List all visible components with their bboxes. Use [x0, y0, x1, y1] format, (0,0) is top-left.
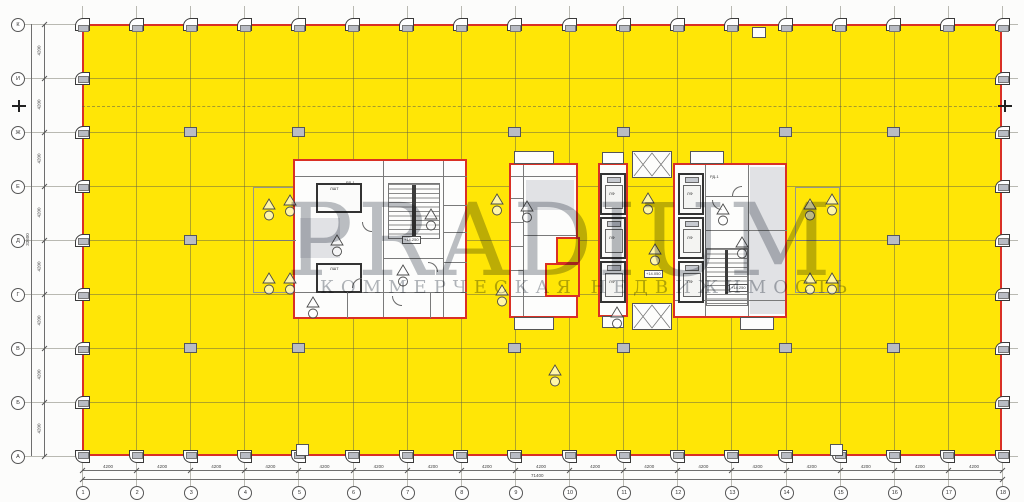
column-concrete-fill — [510, 25, 521, 32]
annotation-symbol — [548, 364, 562, 388]
perimeter-column — [75, 450, 90, 463]
perimeter-column — [399, 450, 414, 463]
column-concrete-fill — [673, 25, 684, 32]
perimeter-column — [237, 450, 252, 463]
lift-counterweight — [607, 265, 621, 271]
perimeter-column — [399, 18, 414, 31]
lift-label: ЛФ — [609, 235, 615, 240]
core-a-partition — [383, 161, 384, 317]
annotation-symbol — [283, 272, 297, 296]
open-partition-line — [253, 240, 296, 241]
column-concrete-fill — [402, 25, 413, 32]
floorplan-drawing: PRADIUM КОММЕРЧЕСКАЯ НЕДВИЖИМОСТЬ 420042… — [0, 0, 1024, 502]
column-concrete-fill — [456, 452, 467, 459]
interior-column — [184, 235, 197, 245]
axis-bubble-left: К — [11, 18, 25, 32]
axis-bubble-bottom: 10 — [563, 486, 577, 500]
vestibule — [602, 152, 624, 164]
column-concrete-fill — [78, 238, 89, 245]
core-a-partition — [383, 258, 444, 259]
column-concrete-fill — [619, 452, 630, 459]
perimeter-column — [75, 342, 90, 355]
column-concrete-fill — [835, 25, 846, 32]
perimeter-column — [995, 288, 1010, 301]
perimeter-column — [778, 18, 793, 31]
core-b-partition — [511, 198, 523, 199]
dim-text-bay: 4200 — [644, 464, 654, 469]
axis-stub-left — [24, 78, 82, 79]
interior-column — [508, 343, 521, 353]
axis-bubble-bottom: 5 — [292, 486, 306, 500]
interior-column — [887, 343, 900, 353]
annotation-symbol — [825, 272, 839, 296]
corridor-vestibule — [632, 303, 672, 330]
column-concrete-fill — [78, 452, 89, 459]
core-a-partition — [347, 292, 348, 318]
perimeter-column — [562, 450, 577, 463]
axis-bubble-bottom: 1 — [76, 486, 90, 500]
perimeter-column — [940, 450, 955, 463]
dim-text-bay: 4200 — [211, 464, 221, 469]
axis-bubble-bottom: 4 — [238, 486, 252, 500]
perimeter-column — [670, 18, 685, 31]
stair-stringer — [725, 250, 728, 294]
core-b-notch — [545, 263, 580, 297]
perimeter-column — [75, 18, 90, 31]
door-tag: РД-1 — [710, 174, 719, 179]
annotation-symbol — [610, 306, 624, 330]
perimeter-column — [616, 450, 631, 463]
axis-bubble-bottom: 7 — [401, 486, 415, 500]
level-mark: +14.250 — [729, 284, 748, 292]
dim-text-bay: 4200 — [428, 464, 438, 469]
axis-bubble-left: Д — [11, 234, 25, 248]
section-mark-left — [18, 100, 20, 112]
vestibule — [514, 151, 554, 164]
perimeter-column — [507, 450, 522, 463]
perimeter-column — [183, 450, 198, 463]
annotation-symbol — [396, 264, 410, 288]
core-b-partition — [511, 176, 576, 177]
lift-shaft — [316, 183, 362, 213]
axis-bubble-left: Г — [11, 288, 25, 302]
column-concrete-fill — [998, 400, 1009, 407]
perimeter-column — [129, 450, 144, 463]
dim-text-bay: 4200 — [374, 464, 384, 469]
perimeter-column — [291, 18, 306, 31]
axis-stub-left — [24, 240, 82, 241]
lift-counterweight — [685, 177, 699, 183]
interior-column — [617, 343, 630, 353]
wall-shaft — [830, 444, 843, 456]
dim-text-bay: 4200 — [103, 464, 113, 469]
axis-bubble-left: Е — [11, 180, 25, 194]
annotation-symbol — [283, 194, 297, 218]
level-mark: +14.250 — [402, 236, 421, 244]
perimeter-column — [778, 450, 793, 463]
column-concrete-fill — [132, 452, 143, 459]
lift-label: ЛФ — [609, 191, 615, 196]
core-d-partition — [705, 196, 748, 197]
axis-stub-left — [24, 294, 82, 295]
dim-text-total-left: 33600 — [25, 233, 30, 246]
vestibule — [740, 317, 774, 330]
dim-text-bay: 4200 — [157, 464, 167, 469]
interior-column — [508, 127, 521, 137]
lift-shaft-label: ЛШТ — [330, 186, 339, 191]
column-concrete-fill — [456, 25, 467, 32]
perimeter-column — [995, 126, 1010, 139]
column-concrete-fill — [348, 452, 359, 459]
dim-text-bay: 4200 — [698, 464, 708, 469]
perimeter-column — [886, 18, 901, 31]
perimeter-column — [75, 180, 90, 193]
perimeter-column — [75, 72, 90, 85]
annotation-symbol — [262, 198, 276, 222]
lift-cab — [605, 273, 623, 297]
interior-column — [779, 343, 792, 353]
dim-text-bay: 4200 — [752, 464, 762, 469]
perimeter-column — [345, 18, 360, 31]
dim-text-bay-left: 4200 — [37, 369, 42, 379]
column-concrete-fill — [294, 25, 305, 32]
column-concrete-fill — [943, 25, 954, 32]
axis-bubble-bottom: 6 — [347, 486, 361, 500]
column-concrete-fill — [78, 25, 89, 32]
perimeter-column — [995, 180, 1010, 193]
level-mark: +14.050 — [644, 270, 663, 278]
annotation-symbol — [648, 243, 662, 267]
perimeter-column — [183, 18, 198, 31]
perimeter-column — [507, 18, 522, 31]
perimeter-column — [75, 234, 90, 247]
column-concrete-fill — [186, 452, 197, 459]
axis-bubble-bottom: 2 — [130, 486, 144, 500]
dim-text-bay-left: 4200 — [37, 423, 42, 433]
perimeter-column — [724, 18, 739, 31]
column-concrete-fill — [727, 452, 738, 459]
dim-text-bay: 4200 — [590, 464, 600, 469]
axis-bubble-left: Ж — [11, 126, 25, 140]
perimeter-column — [75, 288, 90, 301]
axis-bubble-bottom: 11 — [617, 486, 631, 500]
perimeter-column — [345, 450, 360, 463]
dim-text-total-bottom: 71400 — [531, 473, 544, 478]
column-concrete-fill — [78, 292, 89, 299]
column-concrete-fill — [673, 452, 684, 459]
door-tag: РД-1 — [346, 180, 355, 185]
interior-column — [184, 127, 197, 137]
interior-column — [292, 127, 305, 137]
interior-column — [887, 127, 900, 137]
interior-column — [887, 235, 900, 245]
axis-bubble-bottom: 15 — [834, 486, 848, 500]
column-concrete-fill — [889, 25, 900, 32]
dim-text-bay-left: 4200 — [37, 99, 42, 109]
perimeter-column — [453, 450, 468, 463]
grid-line-h — [82, 132, 1002, 133]
dim-text-bay: 4200 — [265, 464, 275, 469]
perimeter-column — [995, 450, 1010, 463]
perimeter-column — [75, 126, 90, 139]
annotation-symbol — [495, 284, 509, 308]
core-b-partition — [511, 246, 523, 247]
perimeter-column — [616, 18, 631, 31]
lift-cab — [683, 229, 701, 253]
column-concrete-fill — [348, 25, 359, 32]
section-mark-right — [1004, 100, 1006, 112]
dim-text-bay-left: 4200 — [37, 45, 42, 55]
perimeter-column — [724, 450, 739, 463]
axis-stub-left — [24, 456, 82, 457]
dim-text-bay-left: 4200 — [37, 315, 42, 325]
lift-cab — [605, 229, 623, 253]
perimeter-column — [995, 342, 1010, 355]
dim-text-bay: 4200 — [320, 464, 330, 469]
dim-text-bay-left: 4200 — [37, 261, 42, 271]
column-concrete-fill — [132, 25, 143, 32]
column-concrete-fill — [781, 452, 792, 459]
core-b-notch — [556, 237, 580, 264]
perimeter-column — [886, 450, 901, 463]
axis-bubble-bottom: 17 — [942, 486, 956, 500]
core-a-partition — [443, 232, 467, 233]
axis-bubble-bottom: 16 — [888, 486, 902, 500]
core-b-partition — [523, 165, 524, 316]
column-concrete-fill — [998, 184, 1009, 191]
grid-line-h — [82, 348, 1002, 349]
column-concrete-fill — [565, 452, 576, 459]
column-concrete-fill — [78, 130, 89, 137]
column-concrete-fill — [943, 452, 954, 459]
dim-text-bay-left: 4200 — [37, 207, 42, 217]
core-a-partition — [443, 262, 467, 263]
lift-counterweight — [607, 221, 621, 227]
wall-shaft — [296, 444, 309, 456]
core-a-partition — [295, 176, 467, 177]
open-partition-line — [795, 240, 840, 241]
annotation-symbol — [641, 192, 655, 216]
vestibule — [690, 151, 724, 164]
column-concrete-fill — [998, 238, 1009, 245]
dim-text-bay: 4200 — [861, 464, 871, 469]
lift-counterweight — [685, 265, 699, 271]
interior-column — [184, 343, 197, 353]
column-concrete-fill — [781, 25, 792, 32]
axis-bubble-bottom: 9 — [509, 486, 523, 500]
core-a-partition — [430, 292, 431, 318]
annotation-symbol — [490, 193, 504, 217]
annotation-symbol — [262, 272, 276, 296]
section-line — [82, 106, 1002, 107]
axis-bubble-left: Б — [11, 396, 25, 410]
column-concrete-fill — [727, 25, 738, 32]
column-concrete-fill — [510, 452, 521, 459]
axis-bubble-left: И — [11, 72, 25, 86]
dim-text-bay: 4200 — [536, 464, 546, 469]
perimeter-column — [129, 18, 144, 31]
column-concrete-fill — [240, 25, 251, 32]
perimeter-column — [995, 396, 1010, 409]
annotation-symbol — [306, 296, 320, 320]
column-concrete-fill — [998, 292, 1009, 299]
core-d-partition — [705, 230, 787, 231]
wall-shaft — [752, 27, 766, 38]
grid-line-h — [82, 402, 1002, 403]
lift-label: ЛФ — [687, 235, 693, 240]
dim-line-bottom — [82, 470, 1002, 471]
core-b-partition — [523, 235, 576, 236]
column-concrete-fill — [998, 76, 1009, 83]
column-concrete-fill — [565, 25, 576, 32]
column-concrete-fill — [998, 25, 1009, 32]
perimeter-column — [453, 18, 468, 31]
column-concrete-fill — [998, 346, 1009, 353]
lift-counterweight — [607, 177, 621, 183]
annotation-symbol — [735, 236, 749, 260]
axis-stub-left — [24, 24, 82, 25]
interior-column — [617, 127, 630, 137]
vestibule — [514, 317, 554, 330]
dim-text-bay: 4200 — [969, 464, 979, 469]
annotation-symbol — [825, 193, 839, 217]
column-concrete-fill — [998, 452, 1009, 459]
perimeter-column — [995, 18, 1010, 31]
annotation-symbol — [803, 272, 817, 296]
perimeter-column — [562, 18, 577, 31]
perimeter-column — [237, 18, 252, 31]
interior-column — [292, 343, 305, 353]
perimeter-column — [670, 450, 685, 463]
double-door-symbol — [633, 304, 671, 329]
axis-bubble-bottom: 3 — [184, 486, 198, 500]
dim-text-bay: 4200 — [482, 464, 492, 469]
annotation-symbol — [330, 234, 344, 258]
axis-stub-left — [24, 348, 82, 349]
perimeter-column — [75, 396, 90, 409]
column-concrete-fill — [889, 452, 900, 459]
axis-bubble-bottom: 14 — [780, 486, 794, 500]
lift-label: ЛФ — [687, 279, 693, 284]
dim-text-bay: 4200 — [915, 464, 925, 469]
perimeter-column — [940, 18, 955, 31]
stair-stringer — [412, 185, 416, 237]
column-concrete-fill — [78, 76, 89, 83]
column-concrete-fill — [78, 400, 89, 407]
axis-stub-left — [24, 132, 82, 133]
core-a-partition — [443, 161, 444, 317]
core-d-shading — [750, 167, 785, 314]
column-concrete-fill — [78, 346, 89, 353]
annotation-symbol — [520, 200, 534, 224]
column-concrete-fill — [619, 25, 630, 32]
dim-line-left-total — [31, 24, 32, 456]
lift-cab — [683, 185, 701, 209]
lift-shaft — [316, 263, 362, 293]
lift-cab — [683, 273, 701, 297]
axis-bubble-bottom: 12 — [671, 486, 685, 500]
grid-line-h — [82, 78, 1002, 79]
double-door-symbol — [633, 152, 671, 177]
axis-bubble-bottom: 13 — [725, 486, 739, 500]
lift-counterweight — [685, 221, 699, 227]
dim-line-bottom-total — [82, 479, 1002, 480]
axis-bubble-bottom: 18 — [996, 486, 1010, 500]
axis-bubble-left: А — [11, 450, 25, 464]
annotation-symbol — [803, 198, 817, 222]
perimeter-column — [995, 72, 1010, 85]
interior-column — [779, 127, 792, 137]
lift-shaft-label: ЛШТ — [330, 266, 339, 271]
column-concrete-fill — [402, 452, 413, 459]
annotation-symbol — [716, 203, 730, 227]
column-concrete-fill — [998, 130, 1009, 137]
annotation-symbol — [424, 208, 438, 232]
column-concrete-fill — [78, 184, 89, 191]
perimeter-column — [995, 234, 1010, 247]
lift-cab — [605, 185, 623, 209]
axis-bubble-bottom: 8 — [455, 486, 469, 500]
corridor-vestibule — [632, 151, 672, 178]
dim-text-bay-left: 4200 — [37, 153, 42, 163]
axis-stub-left — [24, 402, 82, 403]
dim-text-bay: 4200 — [807, 464, 817, 469]
core-a-partition — [443, 205, 467, 206]
axis-bubble-left: В — [11, 342, 25, 356]
column-concrete-fill — [186, 25, 197, 32]
perimeter-column — [832, 18, 847, 31]
column-concrete-fill — [240, 452, 251, 459]
core-b-partition — [511, 270, 523, 271]
lift-label: ЛФ — [687, 191, 693, 196]
lift-label: ЛФ — [609, 279, 615, 284]
axis-stub-left — [24, 186, 82, 187]
